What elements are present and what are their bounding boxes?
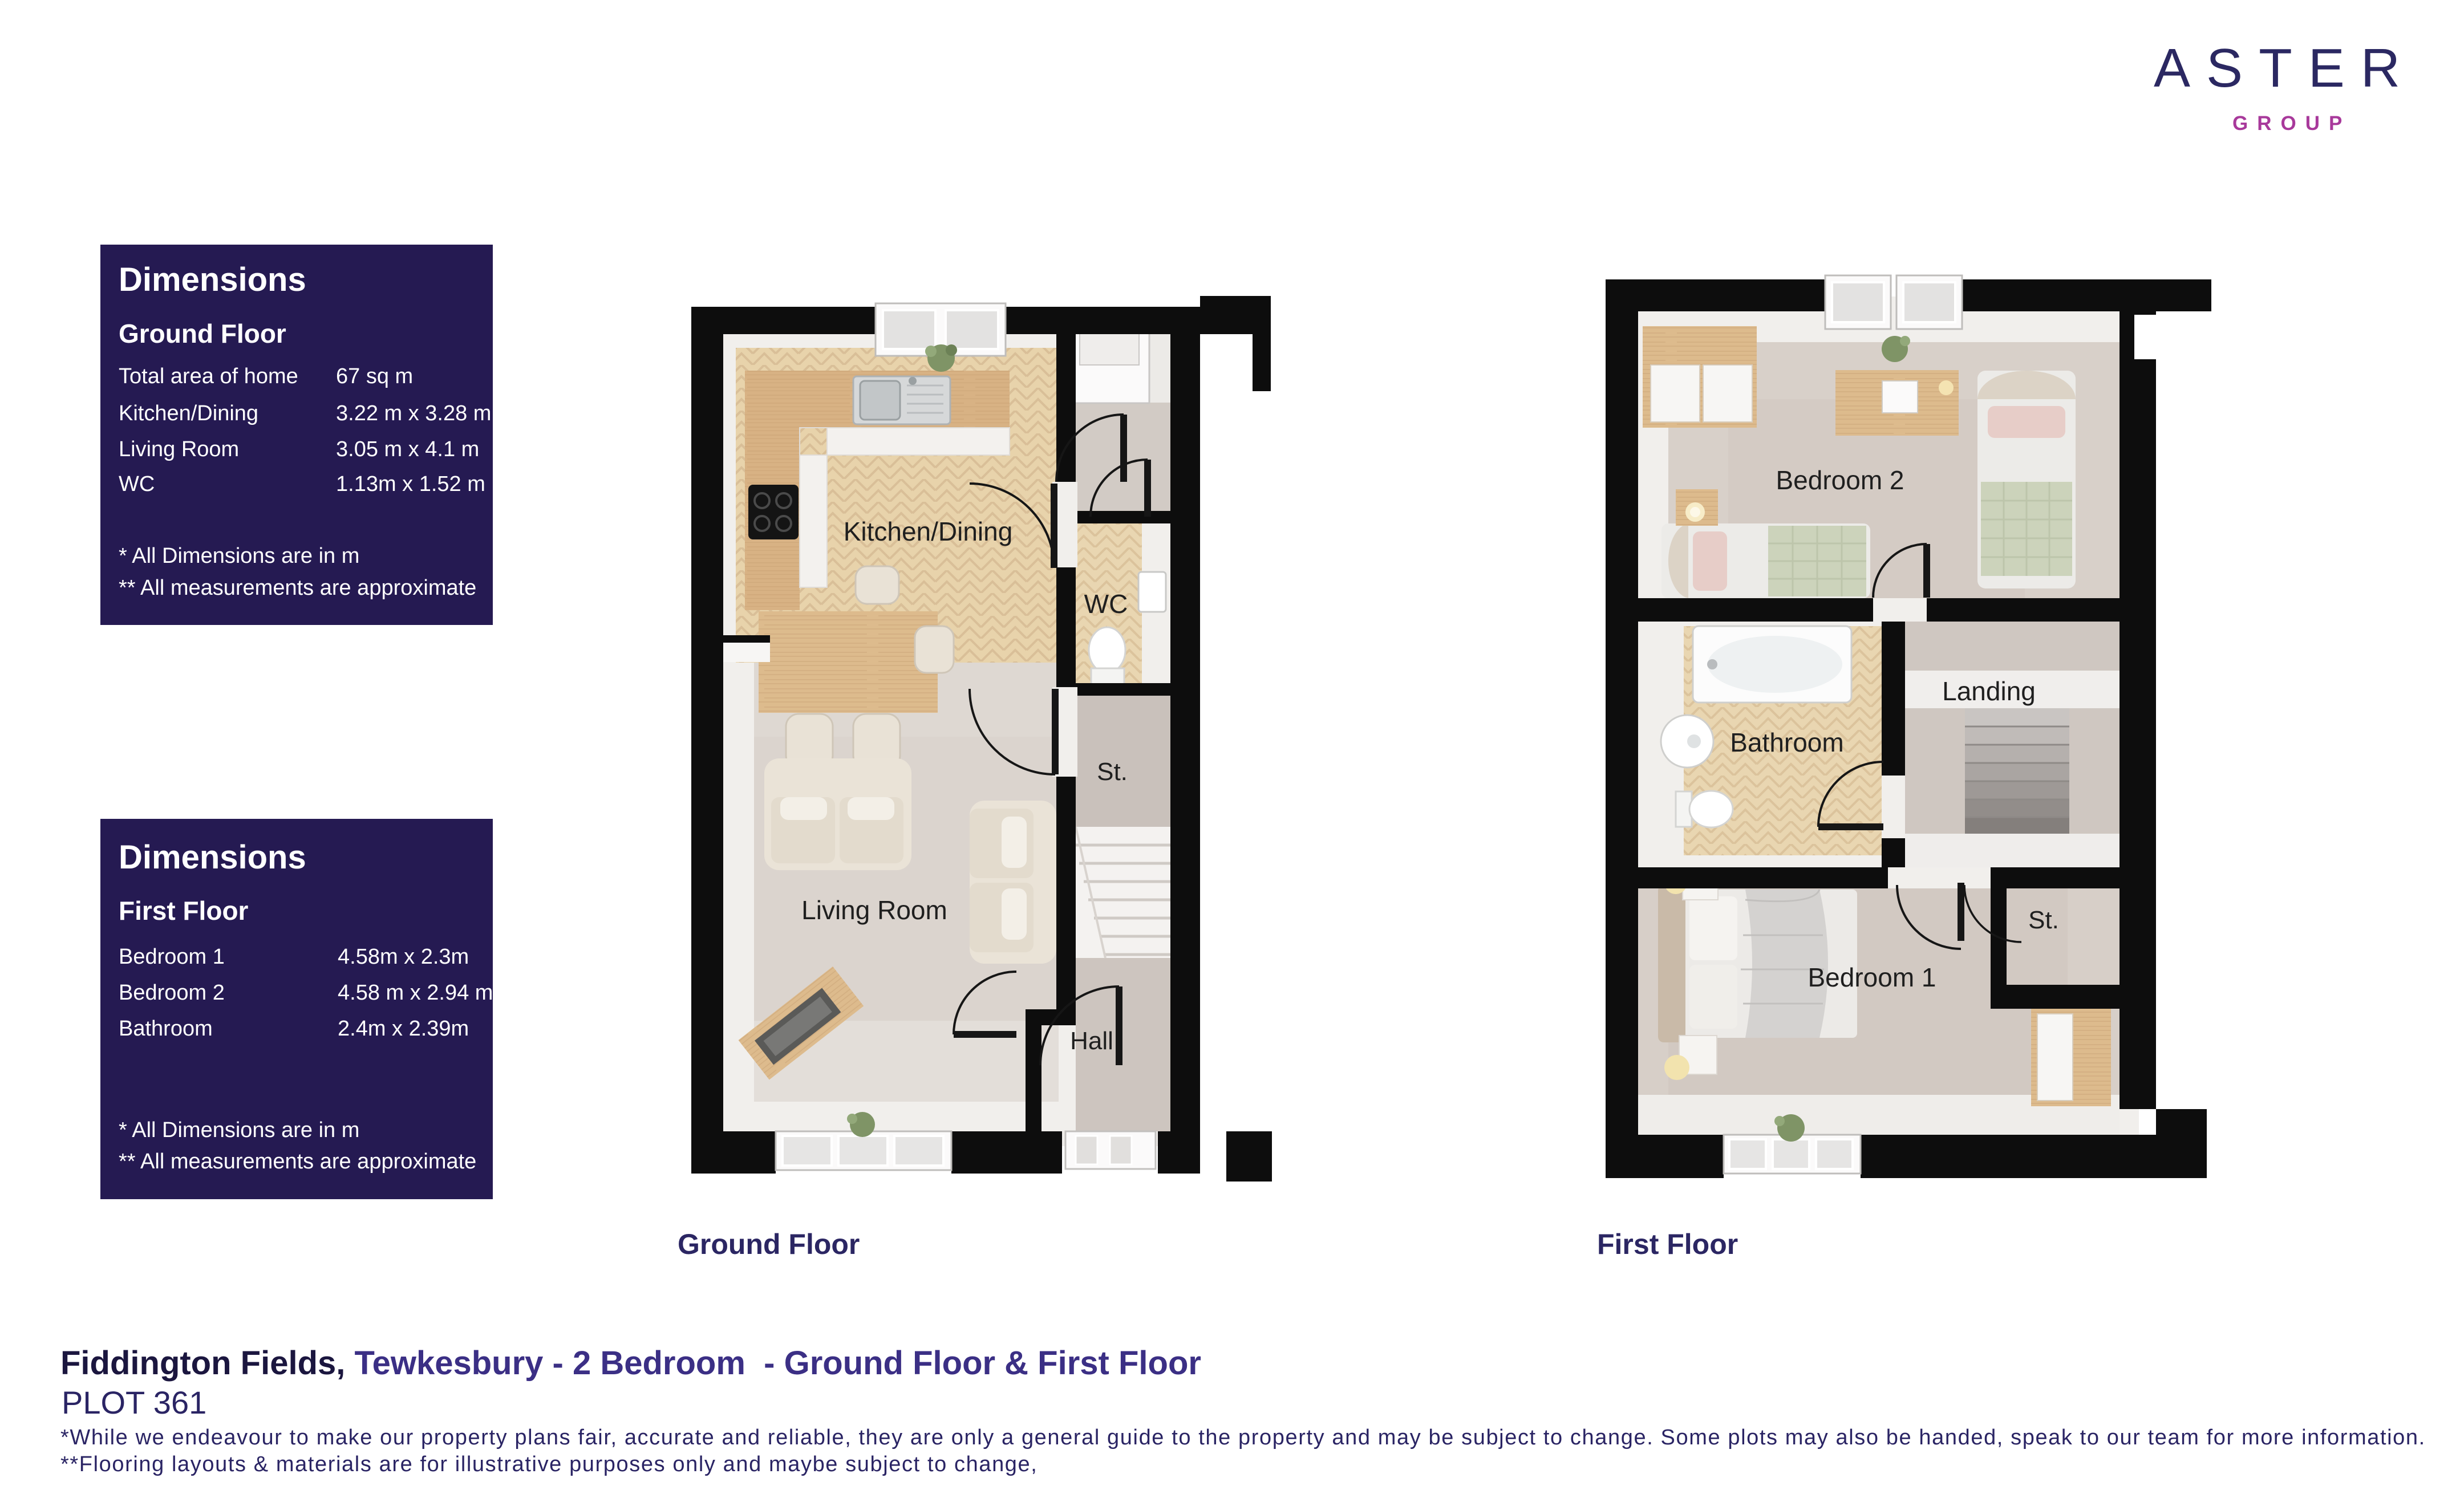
svg-text:1.13m x 1.52 m: 1.13m x 1.52 m bbox=[336, 472, 485, 496]
svg-text:Bathroom: Bathroom bbox=[119, 1017, 213, 1041]
svg-text:Ground Floor: Ground Floor bbox=[678, 1228, 860, 1260]
svg-text:Dimensions: Dimensions bbox=[119, 839, 306, 876]
svg-text:2.4m x 2.39m: 2.4m x 2.39m bbox=[338, 1017, 469, 1041]
svg-text:Bedroom 2: Bedroom 2 bbox=[119, 981, 225, 1005]
svg-text:Living Room: Living Room bbox=[119, 437, 239, 461]
svg-text:First Floor: First Floor bbox=[1597, 1228, 1738, 1260]
svg-text:St.: St. bbox=[2028, 906, 2059, 934]
svg-text:** All measurements are approx: ** All measurements are approximate bbox=[119, 1150, 476, 1174]
svg-text:First Floor: First Floor bbox=[119, 896, 249, 925]
svg-text:Living Room: Living Room bbox=[801, 895, 947, 925]
svg-text:Landing: Landing bbox=[1942, 676, 2036, 706]
svg-text:WC: WC bbox=[119, 472, 155, 496]
svg-text:** All measurements are approx: ** All measurements are approximate bbox=[119, 576, 476, 600]
svg-text:St.: St. bbox=[1097, 758, 1128, 786]
svg-text:ASTER: ASTER bbox=[2154, 38, 2416, 99]
svg-text:*While we endeavour to make ou: *While we endeavour to make our property… bbox=[60, 1426, 2426, 1450]
svg-text:Ground Floor: Ground Floor bbox=[119, 319, 286, 348]
svg-text:* All Dimensions are in m: * All Dimensions are in m bbox=[119, 1118, 359, 1142]
svg-text:Kitchen/Dining: Kitchen/Dining bbox=[119, 401, 258, 425]
svg-text:4.58 m x 2.94 m: 4.58 m x 2.94 m bbox=[338, 981, 493, 1005]
svg-text:Hall: Hall bbox=[1070, 1027, 1113, 1055]
svg-text:Bedroom 2: Bedroom 2 bbox=[1776, 465, 1904, 495]
svg-text:**Flooring layouts & materials: **Flooring layouts & materials are for i… bbox=[60, 1452, 1038, 1476]
svg-text:PLOT 361: PLOT 361 bbox=[62, 1385, 206, 1420]
svg-text:3.22 m x 3.28 m: 3.22 m x 3.28 m bbox=[336, 401, 491, 425]
svg-text:* All Dimensions are in m: * All Dimensions are in m bbox=[119, 544, 359, 568]
svg-text:Bedroom 1: Bedroom 1 bbox=[1808, 963, 1936, 992]
svg-text:Bedroom 1: Bedroom 1 bbox=[119, 945, 225, 969]
svg-text:67 sq m: 67 sq m bbox=[336, 364, 413, 388]
svg-text:GROUP: GROUP bbox=[2232, 112, 2351, 135]
svg-text:4.58m x 2.3m: 4.58m x 2.3m bbox=[338, 945, 469, 969]
svg-text:3.05 m x 4.1 m: 3.05 m x 4.1 m bbox=[336, 437, 479, 461]
svg-text:Fiddington Fields, Tewkesbury: Fiddington Fields, Tewkesbury - 2 Bedroo… bbox=[60, 1345, 1201, 1382]
svg-text:Total area of home: Total area of home bbox=[119, 364, 298, 388]
svg-text:Dimensions: Dimensions bbox=[119, 261, 306, 298]
svg-text:Bathroom: Bathroom bbox=[1730, 728, 1843, 757]
svg-text:WC: WC bbox=[1084, 589, 1128, 619]
svg-text:Kitchen/Dining: Kitchen/Dining bbox=[844, 517, 1013, 546]
